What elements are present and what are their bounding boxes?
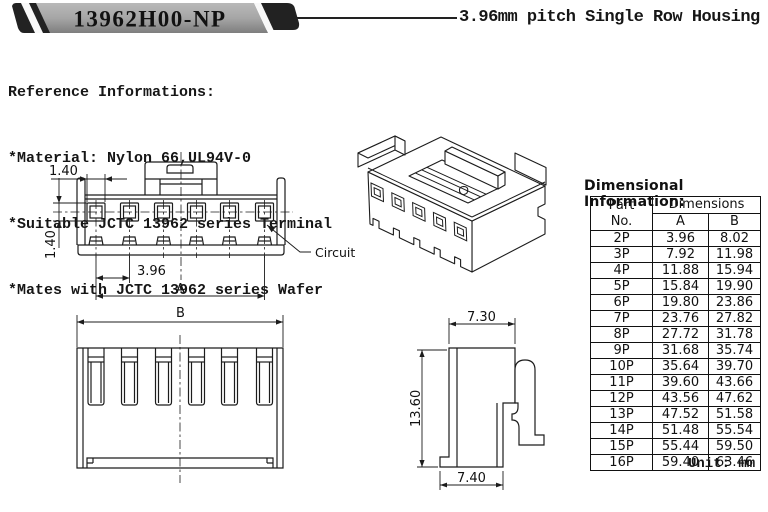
title-banner: 13962H00-NP: [2, 3, 302, 33]
part-number-title: 13962H00-NP: [73, 7, 226, 32]
cell-b: 31.78: [709, 327, 761, 343]
dimension-table: Part No. Dimensions A B 2P3.968.02 3P7.9…: [590, 196, 761, 471]
side-view-dimension-lines: [417, 318, 515, 490]
header-col-b: B: [709, 214, 761, 231]
dim-hole-width-label: 1.40: [49, 164, 78, 179]
cell-a: 55.44: [653, 439, 709, 455]
cell-a: 3.96: [653, 231, 709, 247]
table-row: 10P35.6439.70: [591, 359, 761, 375]
cell-b: 27.82: [709, 311, 761, 327]
table-row: 12P43.5647.62: [591, 391, 761, 407]
table-row: 3P7.9211.98: [591, 247, 761, 263]
cell-a: 31.68: [653, 343, 709, 359]
cell-part: 13P: [591, 407, 653, 423]
title-leader-line: [296, 17, 457, 19]
cell-b: 55.54: [709, 423, 761, 439]
cell-b: 43.66: [709, 375, 761, 391]
cell-part: 7P: [591, 311, 653, 327]
isometric-view-drawing: [352, 124, 552, 279]
table-header-row: Part No. Dimensions: [591, 197, 761, 214]
table-row: 4P11.8815.94: [591, 263, 761, 279]
cell-b: 39.70: [709, 359, 761, 375]
dim-span-a-label: A: [176, 282, 185, 297]
table-row: 11P39.6043.66: [591, 375, 761, 391]
table-row: 14P51.4855.54: [591, 423, 761, 439]
header-part-no: Part No.: [591, 197, 653, 231]
datasheet-page: 13962H00-NP 3.96mm pitch Single Row Hous…: [0, 0, 768, 512]
dim-hole-height-label: 1.40: [44, 230, 59, 259]
cell-a: 27.72: [653, 327, 709, 343]
table-row: 15P55.4459.50: [591, 439, 761, 455]
cell-b: 23.86: [709, 295, 761, 311]
cell-a: 43.56: [653, 391, 709, 407]
dim-height-label: 13.60: [409, 390, 424, 427]
cell-part: 9P: [591, 343, 653, 359]
cell-b: 11.98: [709, 247, 761, 263]
cell-part: 10P: [591, 359, 653, 375]
side-view-body: [440, 348, 544, 467]
cell-a: 23.76: [653, 311, 709, 327]
reference-title: Reference Informations:: [8, 82, 332, 104]
cell-b: 19.90: [709, 279, 761, 295]
header-dimensions: Dimensions: [653, 197, 761, 214]
cell-a: 19.80: [653, 295, 709, 311]
cell-a: 47.52: [653, 407, 709, 423]
table-row: 6P19.8023.86: [591, 295, 761, 311]
cell-b: 8.02: [709, 231, 761, 247]
cell-part: 8P: [591, 327, 653, 343]
table-row: 5P15.8419.90: [591, 279, 761, 295]
page-subtitle: 3.96mm pitch Single Row Housing: [459, 8, 760, 27]
cell-part: 11P: [591, 375, 653, 391]
cell-part: 4P: [591, 263, 653, 279]
cell-part: 14P: [591, 423, 653, 439]
cell-a: 7.92: [653, 247, 709, 263]
cell-a: 51.48: [653, 423, 709, 439]
table-row: 13P47.5251.58: [591, 407, 761, 423]
unit-note: Unit: mm: [688, 456, 755, 472]
side-latch-hook: [512, 360, 544, 445]
dim-pitch-label: 3.96: [137, 264, 166, 279]
cell-b: 51.58: [709, 407, 761, 423]
bottom-view-drawing: B: [45, 303, 335, 511]
table-row: 7P23.7627.82: [591, 311, 761, 327]
cell-a: 35.64: [653, 359, 709, 375]
dim-depth-top-label: 7.30: [467, 310, 496, 325]
table-row: 9P31.6835.74: [591, 343, 761, 359]
table-row: 8P27.7231.78: [591, 327, 761, 343]
cell-part: 2P: [591, 231, 653, 247]
table-row: 2P3.968.02: [591, 231, 761, 247]
cell-part: 3P: [591, 247, 653, 263]
cell-b: 47.62: [709, 391, 761, 407]
side-view-arrowheads: [419, 322, 515, 488]
cell-a: 39.60: [653, 375, 709, 391]
front-view-drawing: 1.40 1.40 3.96 A Circuit 1: [15, 128, 360, 306]
cell-a: 11.88: [653, 263, 709, 279]
cell-a: 15.84: [653, 279, 709, 295]
cell-b: 15.94: [709, 263, 761, 279]
cell-part: 15P: [591, 439, 653, 455]
header-col-a: A: [653, 214, 709, 231]
cell-part: 6P: [591, 295, 653, 311]
side-view-drawing: 7.30 13.60 7.40: [393, 308, 571, 500]
dim-span-b-label: B: [176, 306, 185, 321]
cell-part: 12P: [591, 391, 653, 407]
cell-b: 35.74: [709, 343, 761, 359]
cell-part: 16P: [591, 455, 653, 471]
cell-b: 59.50: [709, 439, 761, 455]
dim-depth-bottom-label: 7.40: [457, 471, 486, 486]
isometric-body: [358, 136, 546, 272]
cell-part: 5P: [591, 279, 653, 295]
